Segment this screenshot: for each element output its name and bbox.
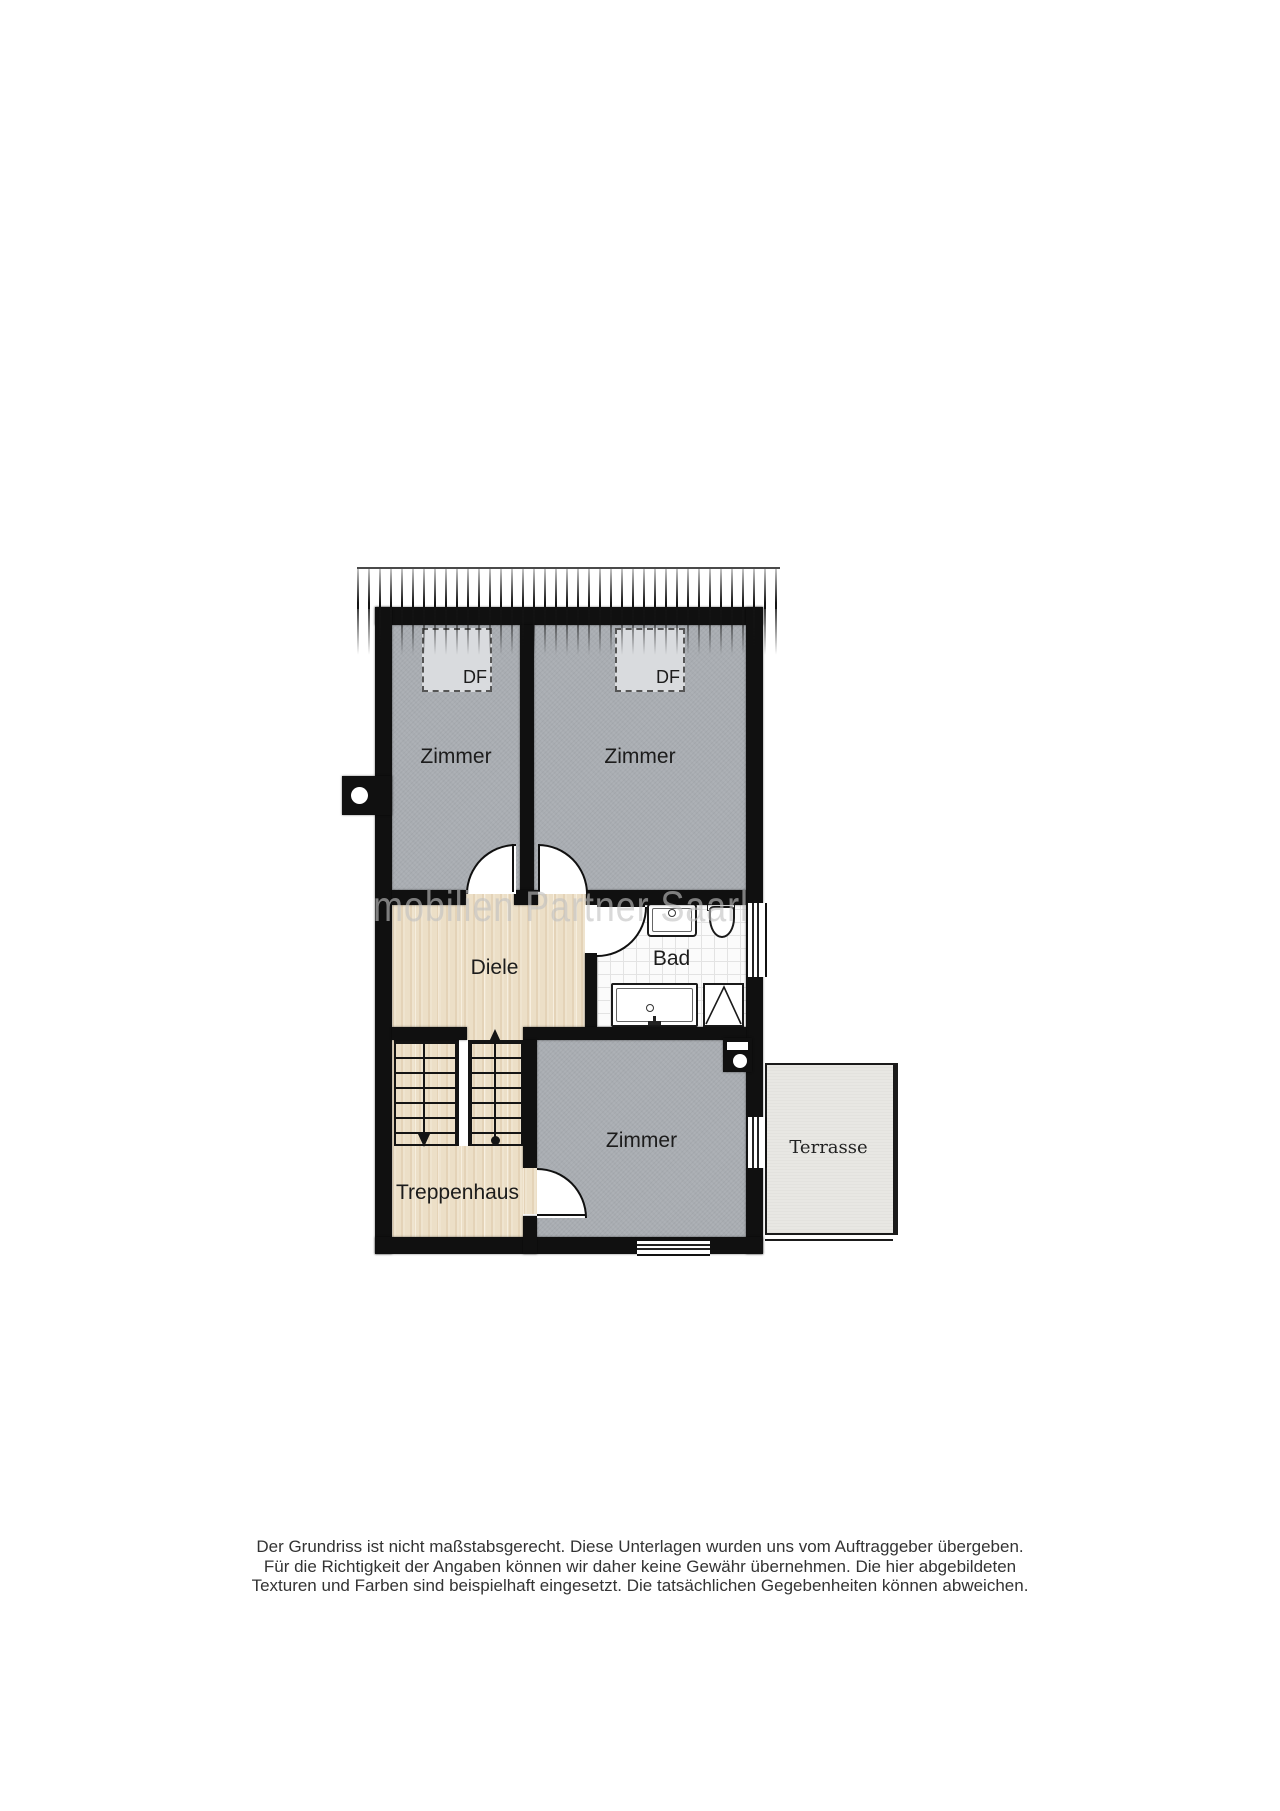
bathtub-faucet-base bbox=[648, 1021, 661, 1025]
door-leaf-bathroom bbox=[597, 905, 645, 907]
stair-walkline-down bbox=[423, 1042, 425, 1136]
stair-arrow-down bbox=[418, 1134, 430, 1147]
chimney-left-vent bbox=[351, 787, 368, 804]
door-leaf-bottom-room bbox=[537, 1214, 585, 1216]
bathroom-window-pane-line bbox=[752, 903, 754, 977]
wall-stair-room-lower bbox=[523, 1216, 537, 1254]
terrace-right-edge bbox=[893, 1063, 898, 1235]
roof-window-right-label: DF bbox=[656, 667, 680, 688]
disclaimer-text: Der Grundriss ist nicht maßstabsgerecht.… bbox=[0, 1537, 1280, 1596]
wall-above-stairs bbox=[392, 1027, 467, 1040]
wall-stair-room-upper bbox=[523, 1040, 537, 1168]
stair-walkline-start-dot bbox=[491, 1136, 500, 1145]
sink bbox=[647, 903, 697, 937]
roof-hatch-fade bbox=[357, 607, 780, 659]
bottom-room-window bbox=[637, 1239, 710, 1256]
roof-hatch-band bbox=[357, 567, 780, 609]
disclaimer-line-1: Der Grundriss ist nicht maßstabsgerecht.… bbox=[0, 1537, 1280, 1557]
bathroom-window bbox=[746, 903, 767, 977]
wall-left bbox=[375, 607, 392, 1254]
bottom-room-window-pane-line bbox=[637, 1248, 710, 1250]
terrace-bottom-edge bbox=[765, 1239, 893, 1241]
door-leaf-room-top-right bbox=[538, 844, 540, 892]
room-label-treppenhaus: Treppenhaus bbox=[388, 1182, 527, 1204]
wall-rooms-bottom-a bbox=[392, 890, 466, 905]
shower bbox=[703, 983, 744, 1027]
room-label-zimmer-top-left: Zimmer bbox=[392, 746, 520, 768]
bottom-room-side-window-pane-line bbox=[757, 1117, 759, 1168]
bathtub bbox=[611, 983, 698, 1027]
roof-window-left-label: DF bbox=[463, 667, 487, 688]
bottom-room-window-pane-line bbox=[637, 1244, 710, 1246]
stair-gap bbox=[457, 1040, 470, 1146]
bathroom-window-pane-line bbox=[757, 903, 759, 977]
disclaimer-line-3: Texturen und Farben sind beispielhaft ei… bbox=[0, 1576, 1280, 1596]
chimney-bath-slot bbox=[727, 1042, 748, 1050]
wall-rooms-bottom-c bbox=[586, 890, 746, 905]
door-opening-bathroom bbox=[585, 905, 597, 953]
stair-flight-right bbox=[470, 1040, 523, 1146]
wall-rooms-bottom-b bbox=[514, 890, 538, 905]
disclaimer-line-2: Für die Richtigkeit der Angaben können w… bbox=[0, 1557, 1280, 1577]
room-label-zimmer-bottom: Zimmer bbox=[537, 1130, 746, 1152]
sink-drain bbox=[668, 909, 676, 917]
shower-symbol bbox=[705, 985, 742, 1025]
terrace-label: Terrasse bbox=[765, 1137, 892, 1158]
room-label-diele: Diele bbox=[392, 957, 597, 979]
room-label-zimmer-top-right: Zimmer bbox=[534, 746, 746, 768]
bottom-room-side-window bbox=[746, 1117, 767, 1168]
wall-under-bath bbox=[523, 1027, 746, 1040]
floor-plan-page: Terrasse DF DF bbox=[0, 0, 1280, 1811]
room-label-bad: Bad bbox=[597, 948, 746, 970]
stair-flight-left bbox=[394, 1040, 457, 1146]
stair-walkline-up bbox=[494, 1040, 496, 1140]
door-leaf-room-top-left bbox=[512, 844, 514, 892]
stair-arrow-up bbox=[489, 1029, 501, 1042]
wall-room-divider bbox=[520, 625, 534, 892]
chimney-bath-vent bbox=[733, 1054, 747, 1068]
bottom-room-side-window-pane-line bbox=[752, 1117, 754, 1168]
bathtub-drain bbox=[646, 1004, 654, 1012]
